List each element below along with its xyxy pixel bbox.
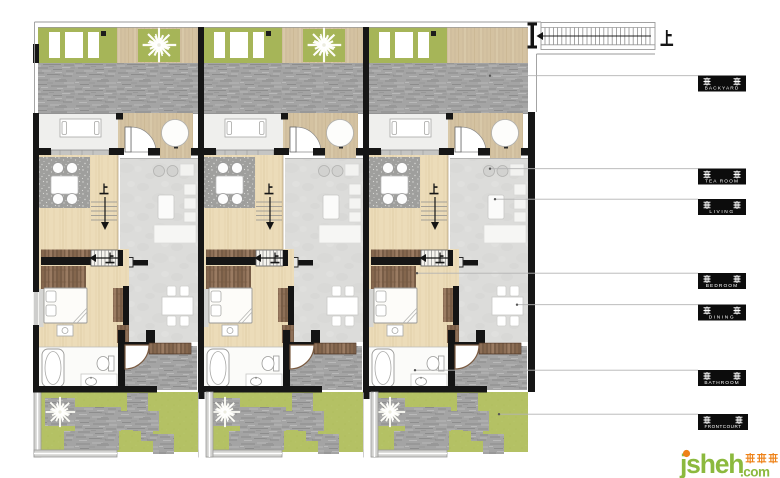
svg-text:BEDROOM: BEDROOM [706, 283, 739, 289]
svg-text:.com: .com [740, 465, 770, 478]
svg-text:DINING: DINING [709, 315, 735, 321]
svg-text:BACKYARD: BACKYARD [705, 86, 740, 92]
svg-text:BATHROOM: BATHROOM [704, 380, 739, 386]
svg-text:TEA ROOM: TEA ROOM [705, 179, 739, 185]
svg-text:FRONTCOURT: FRONTCOURT [704, 424, 741, 429]
svg-text:LIVING: LIVING [709, 209, 734, 215]
